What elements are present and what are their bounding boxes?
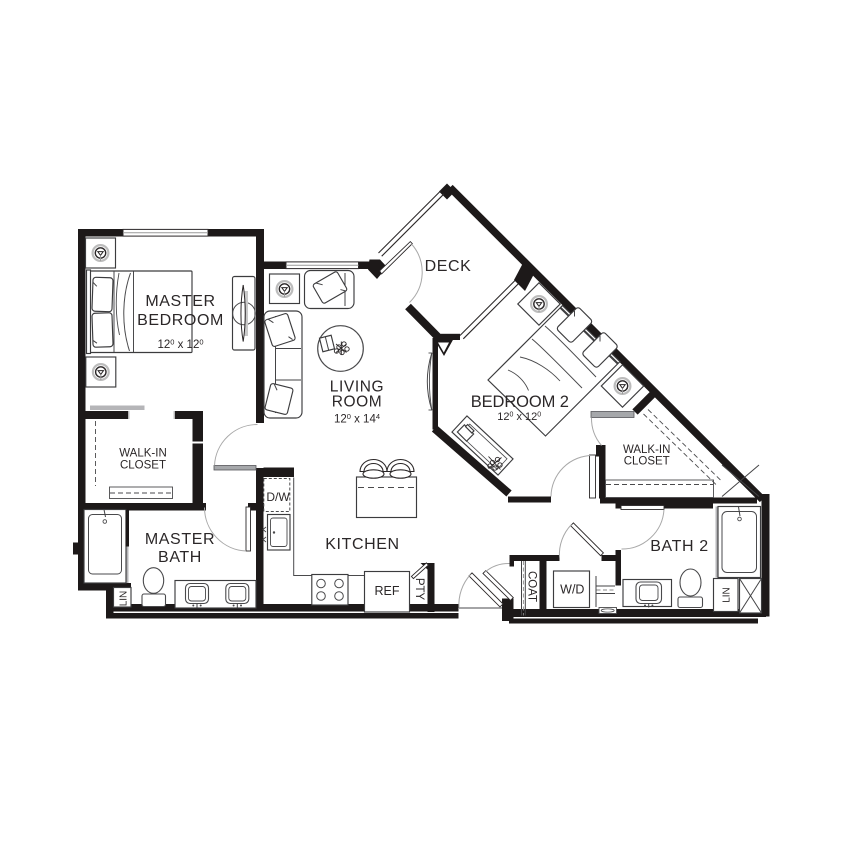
svg-text:COAT: COAT — [526, 571, 538, 602]
svg-text:120 x 120: 120 x 120 — [157, 338, 203, 352]
svg-text:BEDROOM 2: BEDROOM 2 — [471, 393, 569, 411]
svg-text:MASTER: MASTER — [145, 293, 215, 310]
svg-text:DECK: DECK — [425, 258, 472, 275]
svg-text:BEDROOM: BEDROOM — [137, 312, 224, 329]
svg-text:ROOM: ROOM — [332, 394, 383, 411]
svg-text:120 x 120: 120 x 120 — [497, 411, 541, 423]
svg-text:WALK-IN: WALK-IN — [119, 448, 167, 460]
svg-text:MASTER: MASTER — [145, 531, 215, 548]
svg-text:LIN: LIN — [119, 591, 130, 607]
svg-text:CLOSET: CLOSET — [120, 460, 166, 472]
svg-text:BATH: BATH — [158, 549, 202, 566]
svg-text:KITCHEN: KITCHEN — [325, 536, 399, 553]
svg-text:120 x 144: 120 x 144 — [334, 412, 380, 426]
svg-text:LIN: LIN — [722, 587, 733, 603]
svg-text:W/D: W/D — [560, 583, 584, 597]
svg-text:PTY: PTY — [413, 578, 425, 601]
svg-text:D/W: D/W — [266, 490, 290, 504]
svg-text:WALK-IN: WALK-IN — [623, 444, 671, 456]
svg-text:BATH 2: BATH 2 — [650, 538, 708, 555]
svg-text:CLOSET: CLOSET — [624, 456, 670, 468]
svg-text:REF: REF — [375, 584, 400, 598]
